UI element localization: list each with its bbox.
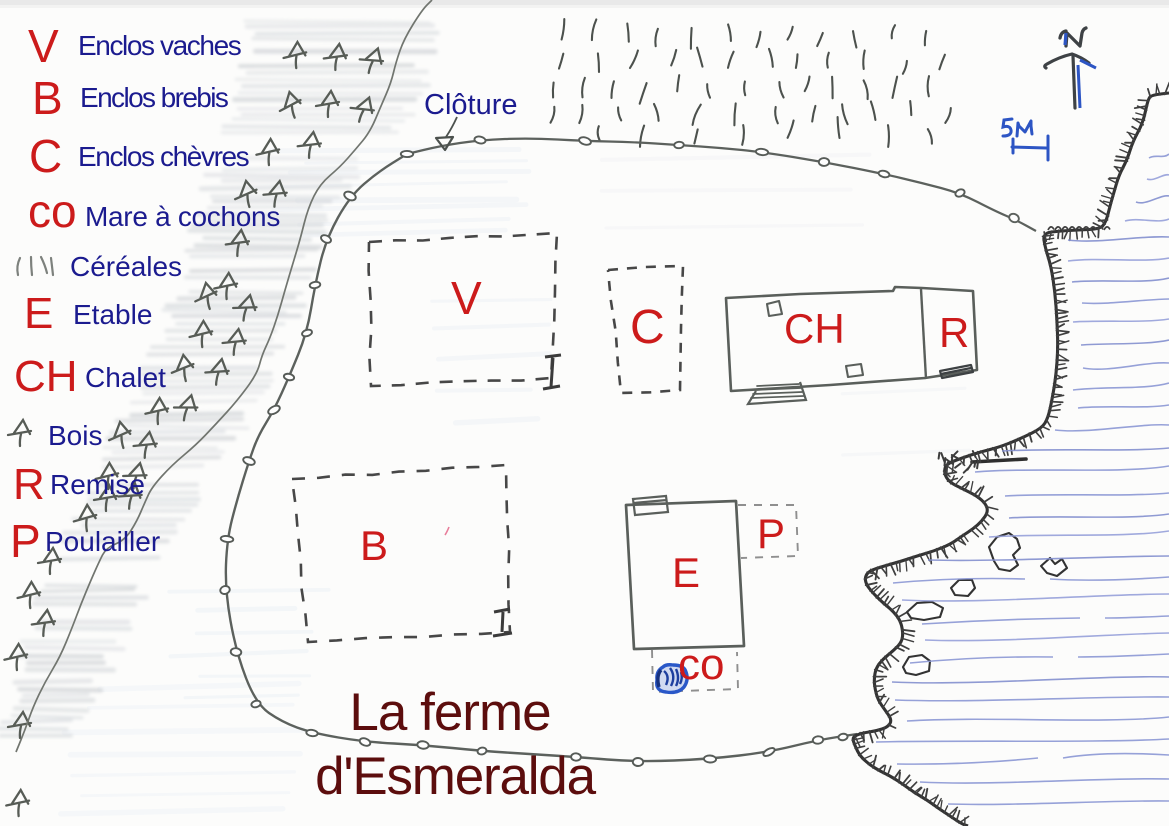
svg-text:Enclos vaches: Enclos vaches	[78, 30, 241, 61]
svg-text:Poulailler: Poulailler	[45, 526, 160, 557]
svg-text:co: co	[678, 640, 724, 689]
svg-text:P: P	[757, 510, 785, 557]
svg-text:d'Esmeralda: d'Esmeralda	[315, 747, 596, 806]
svg-text:P: P	[10, 515, 41, 567]
svg-text:CH: CH	[784, 305, 845, 352]
svg-text:Chalet: Chalet	[85, 362, 166, 393]
svg-text:Remise: Remise	[50, 469, 145, 500]
svg-text:C: C	[29, 130, 62, 182]
svg-text:V: V	[451, 272, 482, 324]
svg-text:co: co	[28, 185, 77, 237]
svg-text:B: B	[32, 72, 63, 124]
svg-text:La ferme: La ferme	[349, 683, 550, 742]
svg-text:Mare à cochons: Mare à cochons	[85, 201, 280, 232]
svg-text:B: B	[360, 522, 388, 569]
svg-text:Bois: Bois	[48, 420, 102, 451]
svg-text:Enclos chèvres: Enclos chèvres	[78, 141, 249, 172]
svg-text:E: E	[672, 549, 700, 596]
svg-text:Clôture: Clôture	[424, 89, 518, 121]
svg-text:Céréales: Céréales	[70, 251, 182, 282]
svg-text:Enclos brebis: Enclos brebis	[80, 82, 228, 113]
svg-text:V: V	[28, 20, 59, 72]
svg-text:R: R	[939, 309, 969, 356]
svg-text:Etable: Etable	[73, 299, 152, 330]
svg-text:C: C	[630, 301, 665, 354]
svg-text:E: E	[24, 289, 53, 338]
svg-text:R: R	[13, 460, 45, 509]
svg-text:CH: CH	[14, 352, 78, 401]
